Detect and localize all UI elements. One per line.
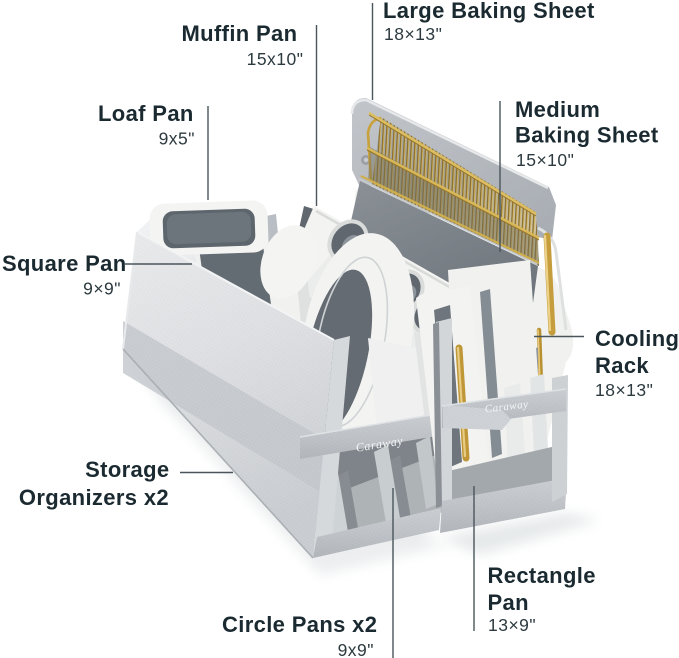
svg-text:Circle Pans x2: Circle Pans x2 [222,612,377,637]
svg-text:Square Pan: Square Pan [2,251,127,276]
svg-text:18×13": 18×13" [384,24,442,44]
svg-text:13×9": 13×9" [488,615,536,635]
svg-text:Storage: Storage [85,457,169,482]
svg-text:Organizers x2: Organizers x2 [19,485,169,510]
svg-text:Cooling: Cooling [595,326,679,351]
svg-text:15x10": 15x10" [247,49,304,69]
svg-text:Baking Sheet: Baking Sheet [515,123,659,148]
svg-text:Large Baking Sheet: Large Baking Sheet [383,0,595,23]
svg-text:9×9": 9×9" [83,279,121,299]
svg-text:Loaf Pan: Loaf Pan [98,101,194,126]
svg-text:9x5": 9x5" [159,129,195,149]
svg-text:15×10": 15×10" [516,150,574,170]
svg-text:Muffin Pan: Muffin Pan [182,21,298,46]
svg-text:Medium: Medium [515,97,600,122]
svg-text:18×13": 18×13" [595,380,653,400]
svg-text:Pan: Pan [488,590,529,615]
svg-text:Rack: Rack [595,353,649,378]
svg-text:Rectangle: Rectangle [488,563,596,588]
svg-text:9x9": 9x9" [338,640,374,658]
